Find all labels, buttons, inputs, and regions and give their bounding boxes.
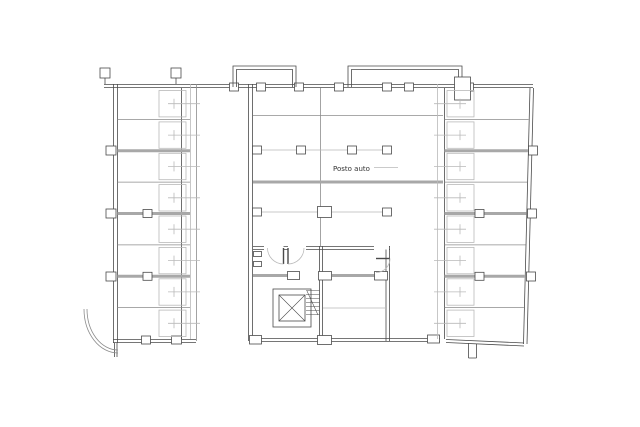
wc-room	[254, 248, 305, 267]
posto-auto-label: Posto auto	[333, 165, 370, 173]
left-garage-rows	[118, 91, 201, 337]
right-garage-rows	[434, 91, 529, 337]
stairs	[306, 291, 320, 316]
stair-core	[250, 246, 441, 345]
wall-column	[100, 68, 181, 84]
entry-door	[376, 259, 390, 273]
wc-door-2	[288, 248, 304, 264]
wc-door-1	[268, 248, 284, 264]
left-garage-block	[106, 84, 200, 357]
driveway-curve	[84, 309, 118, 353]
wall-column	[143, 210, 152, 218]
wall-column	[475, 272, 484, 280]
wc-fixture	[254, 252, 262, 257]
wall-column	[475, 210, 484, 218]
right-garage-block	[434, 77, 538, 358]
central-parking-deck: Posto auto	[249, 84, 444, 341]
elevator	[273, 289, 311, 327]
wall-column	[455, 77, 471, 100]
plan-canvas: Posto auto	[0, 0, 640, 427]
wall-stub	[469, 343, 477, 358]
wall-column	[143, 272, 152, 280]
floor-plan-drawing: Posto auto	[0, 0, 640, 427]
wc-fixture	[254, 262, 262, 267]
